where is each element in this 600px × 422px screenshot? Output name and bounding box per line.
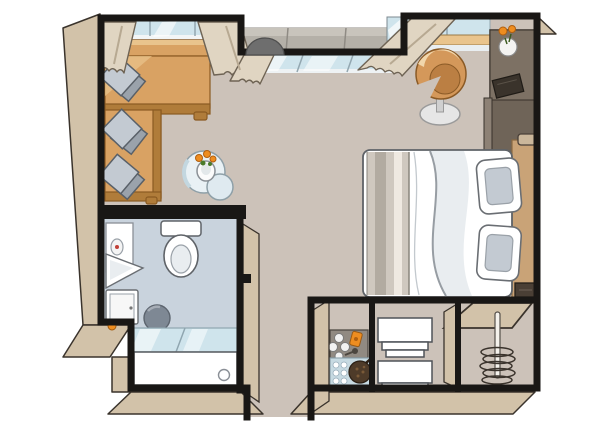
cabinet-side-wing [484,98,492,154]
bench-edge [153,110,161,198]
drain [219,370,230,381]
swivel-chair [414,49,466,125]
wall-face-bath-bottom [108,392,263,414]
kitchenette [329,330,375,386]
cabinet-dot [115,245,119,249]
floor-plan [0,0,600,422]
bathtub [131,328,237,385]
toilet-tank [161,221,201,236]
shelf-step [386,350,424,357]
shelf-stack-lower [378,361,432,383]
pillow [476,157,523,214]
vanity-handle [129,306,132,309]
wall-face-left [63,14,100,325]
shelf-stacks [378,318,432,390]
railing-highlight [244,28,402,36]
bathroom-wall-step [237,274,251,283]
wall-face-step [63,325,131,357]
stool [144,305,170,331]
bench-foot [146,197,157,204]
pillow [476,225,522,282]
desk-foot [194,112,207,120]
bathroom-top-wall [100,205,246,219]
reading-light [518,134,536,145]
toilet-seat [171,245,191,273]
shelf-stack-upper [378,318,432,342]
foot-runner [367,152,409,295]
double-bed [363,134,536,300]
shelf-step [382,342,428,350]
seat-cushions [99,56,147,199]
vase [499,38,517,56]
floor-plan-canvas [0,0,600,422]
bathroom-wall-face [243,224,259,402]
